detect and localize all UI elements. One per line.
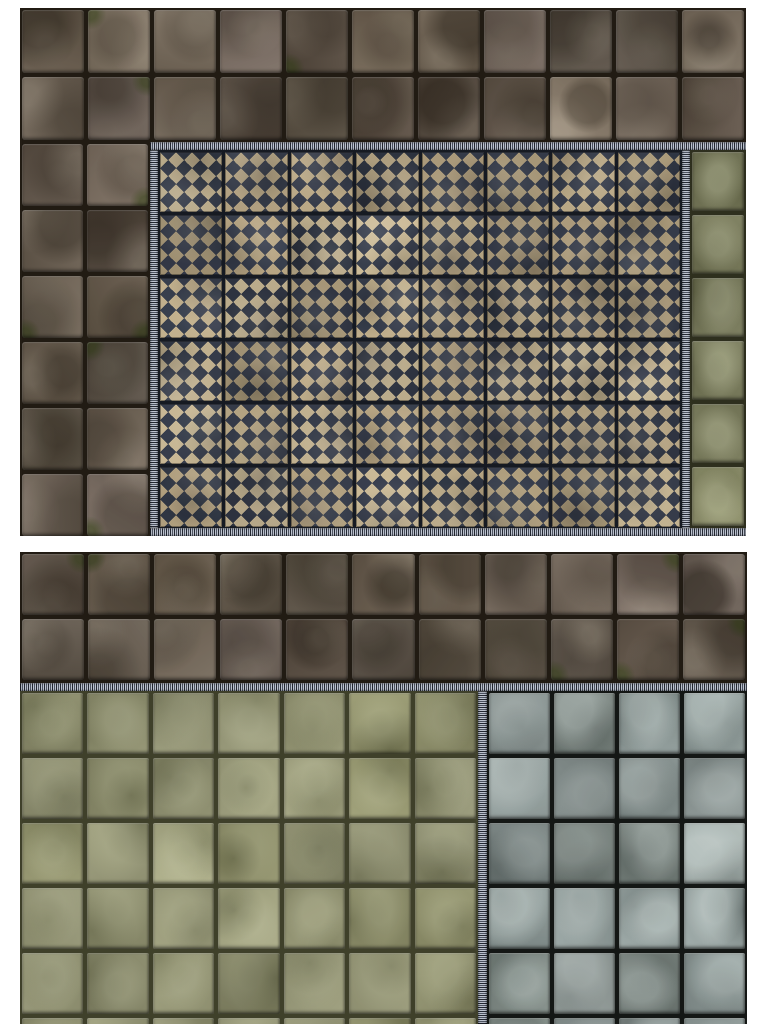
steel-floor-tile	[684, 823, 745, 884]
stone-floor-tile	[87, 144, 148, 206]
stone-border-top-rows	[20, 552, 747, 683]
checkered-floor-cell	[291, 404, 353, 464]
stone-floor-tile	[485, 619, 547, 680]
olive-floor-tile	[415, 953, 476, 1014]
checkered-floor-cell	[291, 467, 353, 527]
checkered-floor-cell	[160, 467, 222, 527]
steel-floor-tile	[619, 693, 680, 754]
olive-floor-tile	[218, 693, 279, 754]
stone-floor-tile	[683, 619, 745, 680]
olive-floor-tile	[153, 758, 214, 819]
stone-floor-tile	[220, 554, 282, 615]
checkered-floor-cell	[487, 278, 549, 338]
metal-trim-middle	[682, 150, 690, 528]
stone-floor-tile	[352, 10, 414, 73]
metal-trim-bottom	[150, 528, 746, 536]
checkered-floor-cell	[291, 278, 353, 338]
olive-floor-tile	[218, 823, 279, 884]
dungeon-map-image-bottom	[20, 552, 747, 1024]
checkered-floor-cell	[552, 341, 614, 401]
steel-floor-tile	[684, 953, 745, 1014]
stone-floor-tile	[616, 10, 678, 73]
steel-floor-tile	[619, 953, 680, 1014]
checkered-floor-cell	[225, 215, 287, 275]
olive-floor-tile	[153, 693, 214, 754]
steel-floor-tile	[619, 758, 680, 819]
olive-floor-tile	[87, 758, 148, 819]
stone-floor-tile	[286, 10, 348, 73]
checkered-floor-cell	[356, 215, 418, 275]
stone-floor-tile	[22, 554, 84, 615]
steel-floor-tile	[619, 888, 680, 949]
olive-floor-tile	[349, 693, 410, 754]
stone-floor-tile	[154, 619, 216, 680]
checkered-floor-cell	[225, 278, 287, 338]
checkered-floor-cell	[160, 278, 222, 338]
olive-floor-tile	[284, 758, 345, 819]
olive-floor-tile	[22, 888, 83, 949]
olive-floor-tile	[692, 341, 744, 400]
olive-floor-tile	[153, 823, 214, 884]
olive-floor-tile	[415, 888, 476, 949]
steel-tile-floor	[487, 691, 747, 1024]
checkered-floor-cell	[225, 341, 287, 401]
checkered-floor	[158, 150, 682, 528]
steel-floor-tile	[619, 1018, 680, 1024]
checkered-floor-cell	[291, 152, 353, 212]
stone-floor-tile	[87, 408, 148, 470]
checkered-floor-cell	[291, 215, 353, 275]
checkered-floor-cell	[487, 215, 549, 275]
checkered-floor-cell	[356, 467, 418, 527]
checkered-floor-cell	[487, 152, 549, 212]
checkered-floor-cell	[422, 404, 484, 464]
olive-floor-tile	[87, 953, 148, 1014]
steel-floor-tile	[684, 758, 745, 819]
checkered-floor-cell	[160, 152, 222, 212]
olive-floor-tile	[349, 823, 410, 884]
steel-floor-tile	[554, 693, 615, 754]
checkered-floor-cell	[160, 215, 222, 275]
stone-floor-tile	[419, 554, 481, 615]
stone-floor-tile	[418, 77, 480, 140]
stone-floor-tile	[683, 554, 745, 615]
stone-floor-tile	[22, 619, 84, 680]
checkered-floor-cell	[356, 404, 418, 464]
stone-floor-tile	[551, 554, 613, 615]
olive-floor-tile	[284, 1018, 345, 1024]
checkered-floor-cell	[552, 404, 614, 464]
stone-floor-tile	[484, 10, 546, 73]
stone-floor-tile	[682, 10, 744, 73]
steel-floor-tile	[489, 888, 550, 949]
checkered-floor-cell	[487, 404, 549, 464]
checkered-floor-cell	[225, 404, 287, 464]
olive-floor-tile	[415, 1018, 476, 1024]
olive-floor-tile	[284, 823, 345, 884]
steel-floor-tile	[554, 758, 615, 819]
olive-floor-tile	[284, 953, 345, 1014]
stone-border-left-cols	[20, 142, 150, 536]
stone-floor-tile	[220, 619, 282, 680]
checkered-floor-cell	[160, 341, 222, 401]
stone-floor-tile	[22, 342, 83, 404]
olive-floor-tile	[87, 823, 148, 884]
steel-floor-tile	[489, 823, 550, 884]
stone-floor-tile	[220, 10, 282, 73]
stone-floor-tile	[154, 554, 216, 615]
checkered-floor-cell	[422, 278, 484, 338]
metal-trim-left	[150, 150, 158, 528]
olive-floor-tile	[692, 404, 744, 463]
olive-floor-tile	[218, 888, 279, 949]
checkered-floor-cell	[160, 404, 222, 464]
olive-floor-tile	[153, 1018, 214, 1024]
stone-border-top-rows	[20, 8, 746, 142]
checkered-floor-cell	[225, 152, 287, 212]
stone-floor-tile	[617, 619, 679, 680]
olive-floor-tile	[415, 758, 476, 819]
checkered-floor-cell	[618, 404, 680, 464]
stone-floor-tile	[352, 554, 414, 615]
olive-floor-tile	[218, 758, 279, 819]
stone-floor-tile	[286, 619, 348, 680]
stone-floor-tile	[87, 474, 148, 536]
checkered-floor-cell	[487, 467, 549, 527]
checkered-floor-cell	[356, 341, 418, 401]
olive-floor-tile	[87, 693, 148, 754]
checkered-floor-cell	[618, 152, 680, 212]
checkered-floor-cell	[422, 467, 484, 527]
stone-floor-tile	[616, 77, 678, 140]
steel-floor-tile	[554, 888, 615, 949]
checkered-floor-cell	[552, 152, 614, 212]
steel-floor-tile	[619, 823, 680, 884]
steel-floor-tile	[684, 888, 745, 949]
stone-floor-tile	[220, 77, 282, 140]
checkered-floor-cell	[225, 467, 287, 527]
checkered-floor-cell	[552, 215, 614, 275]
olive-floor-tile	[87, 1018, 148, 1024]
checkered-floor-cell	[487, 341, 549, 401]
steel-floor-tile	[554, 823, 615, 884]
steel-floor-tile	[489, 953, 550, 1014]
olive-floor-tile	[284, 888, 345, 949]
olive-tile-column	[690, 150, 746, 528]
olive-floor-tile	[349, 953, 410, 1014]
checkered-floor-cell	[291, 341, 353, 401]
checkered-floor-cell	[422, 215, 484, 275]
stone-floor-tile	[88, 77, 150, 140]
olive-floor-tile	[415, 693, 476, 754]
stone-floor-tile	[87, 276, 148, 338]
stone-floor-tile	[22, 276, 83, 338]
olive-floor-tile	[349, 888, 410, 949]
olive-floor-tile	[218, 1018, 279, 1024]
checkered-floor-cell	[618, 341, 680, 401]
olive-floor-tile	[692, 278, 744, 337]
stone-floor-tile	[418, 10, 480, 73]
dungeon-map-image-top	[20, 8, 746, 536]
stone-floor-tile	[617, 554, 679, 615]
steel-floor-tile	[489, 758, 550, 819]
stone-floor-tile	[154, 77, 216, 140]
checkered-floor-cell	[618, 467, 680, 527]
olive-floor-tile	[284, 693, 345, 754]
checkered-floor-cell	[552, 467, 614, 527]
olive-floor-tile	[692, 152, 744, 211]
stone-floor-tile	[88, 554, 150, 615]
stone-floor-tile	[87, 342, 148, 404]
stone-floor-tile	[22, 210, 83, 272]
checkered-floor-cell	[422, 341, 484, 401]
stone-floor-tile	[22, 10, 84, 73]
stone-floor-tile	[352, 77, 414, 140]
stone-floor-tile	[551, 619, 613, 680]
stone-floor-tile	[88, 10, 150, 73]
stone-floor-tile	[22, 408, 83, 470]
metal-trim-vertical	[478, 691, 487, 1024]
steel-floor-tile	[489, 1018, 550, 1024]
steel-floor-tile	[684, 1018, 745, 1024]
olive-tile-floor	[20, 691, 478, 1024]
olive-floor-tile	[349, 1018, 410, 1024]
metal-trim-horizontal	[20, 683, 747, 691]
checkered-floor-cell	[356, 152, 418, 212]
olive-floor-tile	[692, 215, 744, 274]
stone-floor-tile	[484, 77, 546, 140]
steel-floor-tile	[489, 693, 550, 754]
olive-floor-tile	[218, 953, 279, 1014]
steel-floor-tile	[684, 693, 745, 754]
stone-floor-tile	[419, 619, 481, 680]
olive-floor-tile	[22, 693, 83, 754]
steel-floor-tile	[554, 1018, 615, 1024]
stone-floor-tile	[154, 10, 216, 73]
olive-floor-tile	[349, 758, 410, 819]
page-canvas	[0, 0, 768, 1024]
stone-floor-tile	[22, 144, 83, 206]
olive-floor-tile	[22, 953, 83, 1014]
stone-floor-tile	[87, 210, 148, 272]
olive-floor-tile	[22, 823, 83, 884]
stone-floor-tile	[88, 619, 150, 680]
stone-floor-tile	[352, 619, 414, 680]
checkered-floor-cell	[422, 152, 484, 212]
olive-floor-tile	[153, 888, 214, 949]
stone-floor-tile	[286, 77, 348, 140]
stone-floor-tile	[22, 77, 84, 140]
olive-floor-tile	[22, 758, 83, 819]
olive-floor-tile	[692, 467, 744, 526]
stone-floor-tile	[286, 554, 348, 615]
stone-floor-tile	[550, 10, 612, 73]
checkered-floor-cell	[618, 278, 680, 338]
olive-floor-tile	[415, 823, 476, 884]
checkered-floor-cell	[552, 278, 614, 338]
olive-floor-tile	[22, 1018, 83, 1024]
stone-floor-tile	[22, 474, 83, 536]
stone-floor-tile	[485, 554, 547, 615]
metal-trim-top	[150, 142, 746, 150]
olive-floor-tile	[87, 888, 148, 949]
steel-floor-tile	[554, 953, 615, 1014]
checkered-floor-cell	[618, 215, 680, 275]
checkered-floor-cell	[356, 278, 418, 338]
stone-floor-tile	[682, 77, 744, 140]
olive-floor-tile	[153, 953, 214, 1014]
stone-floor-tile	[550, 77, 612, 140]
